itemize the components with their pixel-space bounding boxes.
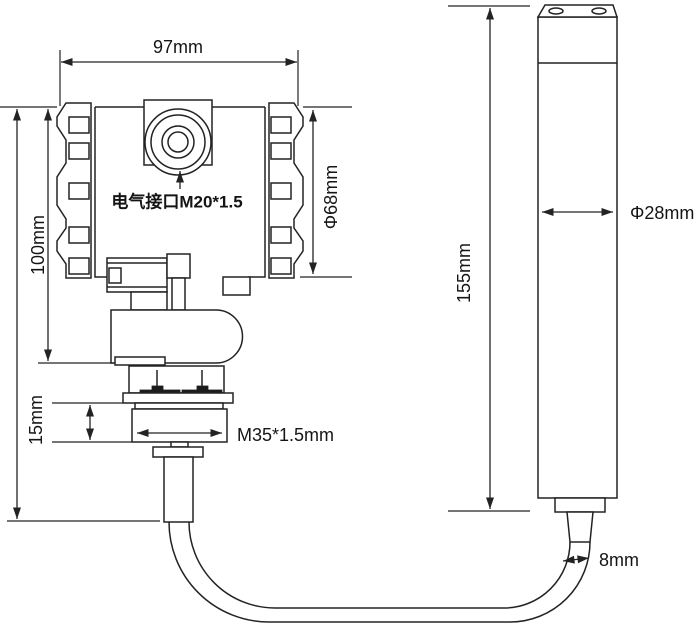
dim-label-100mm: 100mm xyxy=(28,215,48,275)
nameplate-bracket xyxy=(107,254,250,310)
dimension-8mm: 8mm xyxy=(563,550,639,570)
process-connection xyxy=(123,393,233,522)
dim-label-8mm: 8mm xyxy=(599,550,639,570)
sensor-module xyxy=(111,310,243,365)
dim-label-15mm: 15mm xyxy=(26,395,46,445)
submersible-probe xyxy=(538,5,617,542)
label-process-thread: M35*1.5mm xyxy=(237,425,334,445)
terminal-cap-right xyxy=(269,103,303,278)
callout-electrical-port: 电气接口M20*1.5 xyxy=(111,171,242,212)
dimension-15mm: 15mm xyxy=(26,395,132,445)
transmitter-housing xyxy=(57,100,303,522)
drawing-canvas: 97mm 100mm 15mm xyxy=(0,0,700,629)
probe-body xyxy=(538,17,617,498)
terminal-cap-left xyxy=(57,103,91,278)
dim-label-phi28: Φ28mm xyxy=(630,203,694,223)
dim-label-phi68: Φ68mm xyxy=(321,165,341,229)
dim-label-97mm: 97mm xyxy=(153,37,203,57)
dimension-155mm: 155mm xyxy=(448,6,530,511)
probe-top-hole-left xyxy=(549,8,563,14)
electrical-connector xyxy=(144,100,212,175)
dimension-drawing: 97mm 100mm 15mm xyxy=(0,0,700,629)
cable-entry-tube xyxy=(164,457,193,522)
probe-top-hole-right xyxy=(592,8,606,14)
probe-bottom-step xyxy=(555,498,605,512)
dimension-phi68: Φ68mm xyxy=(300,110,352,277)
process-neck xyxy=(129,366,224,395)
connection-cable xyxy=(169,522,590,622)
label-electrical-port: 电气接口M20*1.5 xyxy=(111,192,242,212)
probe-cable-gland xyxy=(567,512,593,542)
dim-label-155mm: 155mm xyxy=(454,243,474,303)
dimension-97mm: 97mm xyxy=(60,37,298,106)
hex-nut xyxy=(132,409,227,442)
